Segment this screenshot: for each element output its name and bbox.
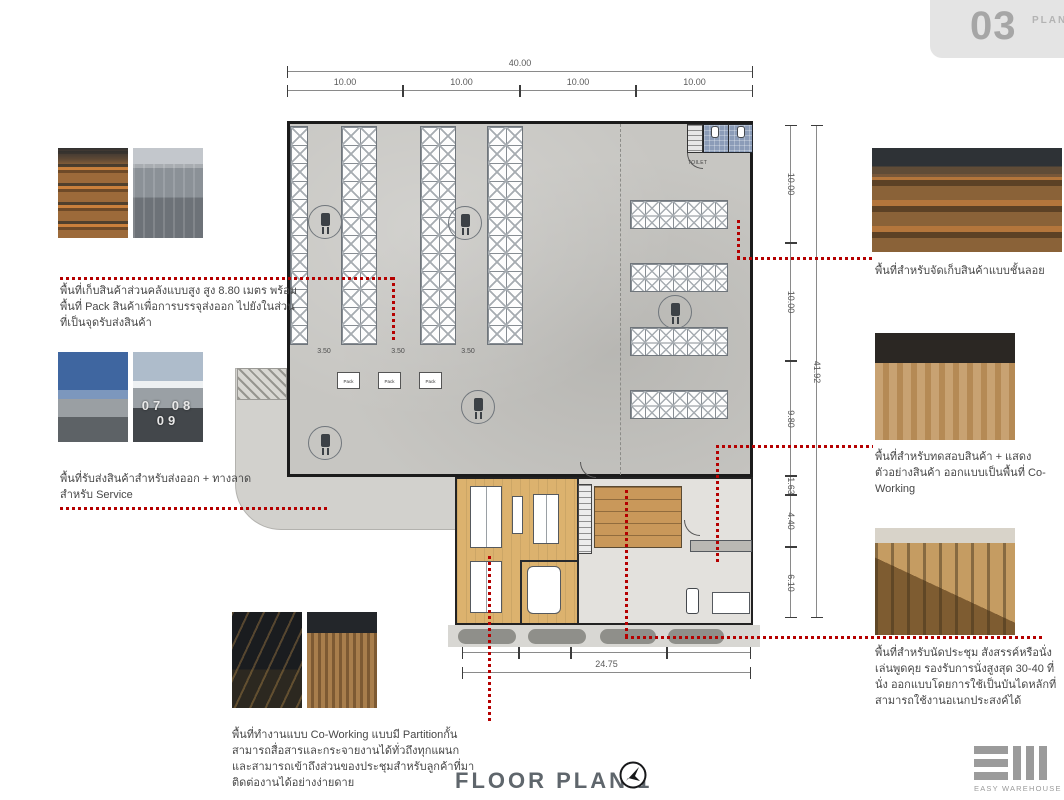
annotation-showroom: พื้นที่สำหรับทดสอบสินค้า + แสดงตัวอย่างส… (875, 450, 1064, 498)
page-number-label: PLAN (1032, 15, 1064, 26)
dim-label: 10.00 (636, 77, 753, 87)
logo-mark (974, 746, 1058, 780)
photo-warehouse-interior (133, 148, 203, 238)
dim-right-total: 41.92 (816, 125, 817, 618)
leader-line (625, 636, 1045, 639)
main-stair (578, 484, 592, 554)
partition-wall (520, 560, 578, 562)
rack-row (487, 126, 523, 345)
dim-bottom-seg: 7.20 (667, 652, 751, 653)
annotation-meeting-steps: พื้นที่สำหรับนัดประชุม สังสรรค์หรือนั่งเ… (875, 646, 1060, 710)
desk-cluster (533, 494, 559, 544)
dim-label: 41.92 (812, 360, 822, 383)
pallet-block (630, 390, 728, 419)
dim-bottom-seg: 8.20 (571, 652, 667, 653)
dim-label: 9.80 (786, 410, 796, 428)
cabinet (512, 496, 523, 534)
dim-label: 40.00 (287, 58, 753, 68)
leader-line (60, 277, 392, 280)
toilet-fixture (737, 126, 745, 138)
loading-apron (287, 477, 455, 530)
dim-label: 10.00 (403, 77, 520, 87)
leader-line (716, 445, 719, 565)
floor-plan-page: 03 PLAN 40.00 10.00 10.00 10.00 10.00 10… (0, 0, 1064, 800)
dim-label: 1.63 (786, 477, 796, 495)
dim-right-seg: 4.40 (790, 495, 791, 547)
forklift-symbol (308, 205, 342, 239)
reception-counter (690, 540, 752, 552)
photo-office-interior (307, 612, 377, 708)
forklift-symbol (448, 206, 482, 240)
dim-label: 10.00 (786, 291, 796, 314)
annotation-loading: พื้นที่รับส่งสินค้าสำหรับส่งออก + ทางลาด… (60, 472, 270, 504)
office-desk (712, 592, 750, 614)
pack-table: Pack (337, 372, 360, 389)
leader-line (716, 445, 873, 448)
logo-w-bars (1013, 746, 1047, 780)
planter (458, 629, 516, 644)
dim-label: 10.00 (786, 173, 796, 196)
leader-line (737, 257, 873, 260)
leader-line (392, 277, 395, 343)
dim-top-seg: 10.00 (636, 90, 753, 91)
pack-table: Pack (378, 372, 401, 389)
aisle-dim-label: 3.50 (450, 348, 486, 355)
aisle-dim-label: 3.50 (306, 348, 342, 355)
dim-bottom-seg: 4.425 (519, 652, 571, 653)
tiered-seating-steps (594, 486, 682, 548)
photo-loading-dock: 07 08 09 (133, 352, 203, 442)
pallet-block (630, 200, 728, 229)
dock-bay-numbers: 07 08 09 (133, 398, 203, 428)
toilet-fixture (711, 126, 719, 138)
dim-bottom-total: 24.75 (462, 672, 751, 673)
dim-top-seg: 10.00 (520, 90, 636, 91)
forklift-symbol (308, 426, 342, 460)
photo-step-seating (875, 528, 1015, 635)
dim-top-total: 40.00 (287, 71, 753, 72)
toilet-label: TOILET (688, 160, 707, 166)
desk-cluster (470, 486, 502, 548)
meeting-table (527, 566, 561, 614)
leader-line (488, 556, 491, 722)
dim-right-seg: 10.00 (790, 243, 791, 361)
service-ramp (237, 368, 287, 400)
toilet-divider (728, 124, 729, 153)
pallet-block (630, 327, 728, 356)
logo-name: EASY WAREHOUSE (974, 784, 1058, 793)
forklift-symbol (658, 295, 692, 329)
dim-right-seg: 1.63 (790, 476, 791, 495)
partition-wall (520, 560, 522, 623)
leader-line (60, 507, 330, 510)
stair (687, 124, 703, 153)
photo-warehouse-racking (58, 148, 128, 238)
dim-right-seg: 10.00 (790, 125, 791, 243)
pallet-block (630, 263, 728, 292)
zone-boundary-dashed (620, 124, 621, 475)
dim-label: 4.40 (786, 512, 796, 530)
leader-line (625, 490, 628, 638)
photo-meeting-room (232, 612, 302, 708)
logo-e-bars (974, 746, 1008, 780)
planter (528, 629, 586, 644)
annotation-mezzanine: พื้นที่สำหรับจัดเก็บสินค้าแบบชั้นลอย (875, 264, 1064, 280)
leader-line (737, 220, 740, 260)
dim-right-seg: 6.10 (790, 547, 791, 618)
toilet-fixture (686, 588, 699, 614)
forklift-symbol (461, 390, 495, 424)
page-number: 03 (970, 4, 1017, 49)
rack-row (420, 126, 456, 345)
dim-label: 6.10 (786, 574, 796, 592)
north-arrow-icon (618, 760, 648, 795)
dim-right-seg: 9.80 (790, 361, 791, 476)
dim-label: 10.00 (520, 77, 636, 87)
dim-label: 10.00 (287, 77, 403, 87)
pack-table: Pack (419, 372, 442, 389)
photo-mezzanine-storage (872, 148, 1062, 252)
rack-row (341, 126, 377, 345)
dim-top-seg: 10.00 (403, 90, 520, 91)
page-number-badge: 03 PLAN (930, 0, 1064, 58)
annotation-coworking: พื้นที่ทำงานแบบ Co-Working แบบมี Partiti… (232, 728, 476, 792)
easy-warehouse-logo: EASY WAREHOUSE (974, 746, 1058, 793)
photo-coworking-space (875, 333, 1015, 440)
desk-cluster (470, 561, 502, 613)
aisle-dim-label: 3.50 (380, 348, 416, 355)
photo-warehouse-exterior (58, 352, 128, 442)
dim-label: 24.75 (462, 659, 751, 669)
dim-top-seg: 10.00 (287, 90, 403, 91)
annotation-storage: พื้นที่เก็บสินค้าส่วนคลังแบบสูง สูง 8.80… (60, 284, 298, 332)
